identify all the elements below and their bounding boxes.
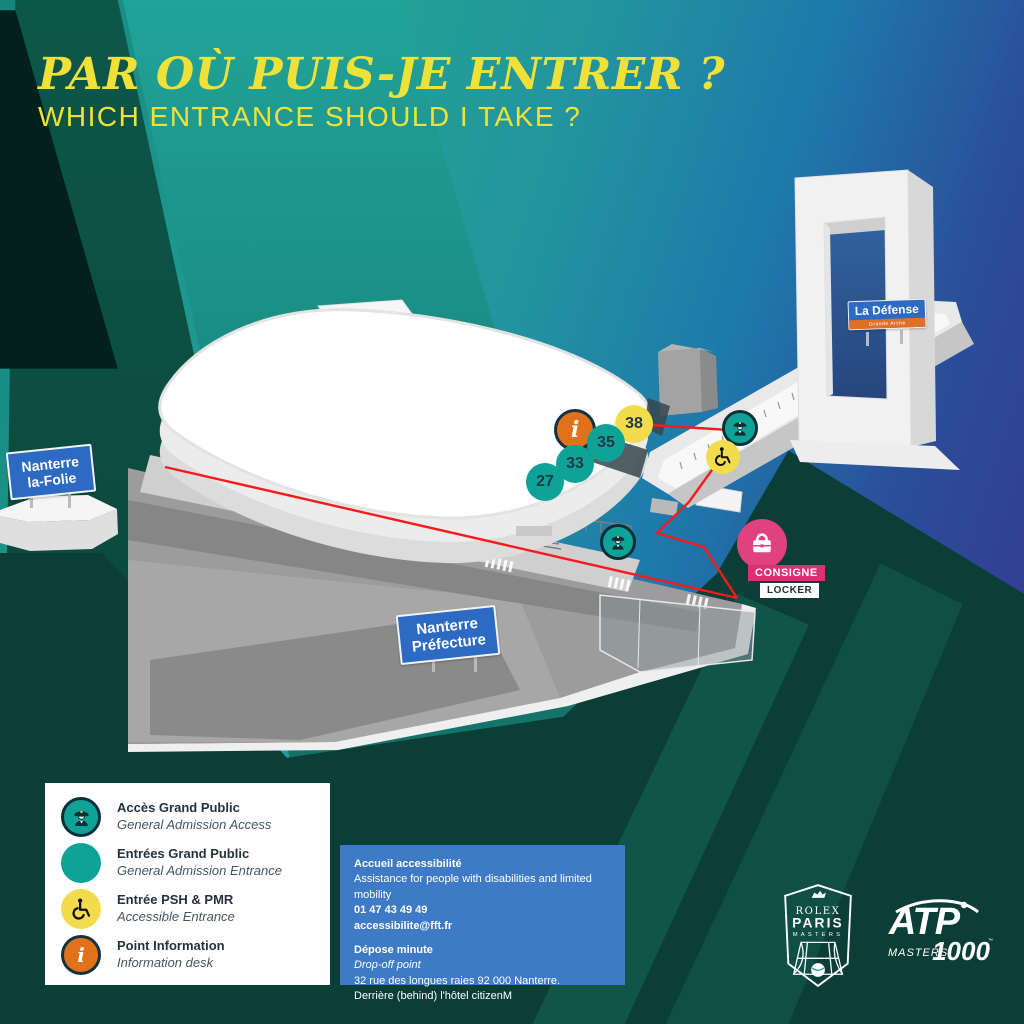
entrance-27-marker: 27 [526, 463, 564, 501]
legend-label-fr: Entrée PSH & PMR [117, 892, 235, 909]
locker-bag-icon [747, 529, 777, 559]
guard-icon [606, 530, 630, 554]
legend-label-en: Accessible Entrance [117, 909, 235, 926]
wheelchair-icon [711, 445, 735, 469]
phone-number: 01 47 43 49 49 [354, 903, 611, 918]
sign-subtitle: Grande Arche [849, 318, 925, 330]
atp-masters-1000-logo: ATP MASTERS 1000 ™ [866, 898, 994, 970]
email-address: accessibilite@fft.fr [354, 919, 611, 934]
dropoff-note: Derrière (behind) l'hôtel citizenM [354, 989, 611, 1004]
rolex-paris-masters-logo: ROLEX PARIS MASTERS [780, 882, 856, 988]
legend-item-access: Accès Grand Public General Admission Acc… [61, 797, 330, 837]
poster: Nanterre la-Folie Nanterre Préfecture La… [0, 0, 1024, 1024]
entrance-number: 38 [625, 415, 643, 433]
entrance-number: 33 [566, 455, 584, 473]
locker-label: LOCKER [760, 583, 819, 598]
guard-icon [728, 416, 752, 440]
page-title: PAR OÙ PUIS-JE ENTRER ? WHICH ENTRANCE S… [38, 52, 725, 133]
legend-item-information: i Point Information Information desk [61, 935, 330, 975]
accessibility-desc: Assistance for people with disabilities … [354, 872, 611, 903]
entrance-number: 27 [536, 473, 554, 491]
legend-label-fr: Point Information [117, 938, 225, 955]
svg-text:MASTERS: MASTERS [793, 932, 843, 938]
info-icon: i [571, 417, 579, 443]
sign-post [866, 332, 869, 346]
dropoff-subtitle: Drop-off point [354, 958, 611, 973]
sign-nanterre-prefecture: Nanterre Préfecture [396, 605, 501, 665]
locker-marker [737, 519, 787, 569]
crown-icon [812, 891, 826, 898]
dropoff-address: 32 rue des longues raies 92 000 Nanterre… [354, 974, 611, 989]
entrance-number: 35 [597, 434, 615, 452]
legend-item-entrance: Entrées Grand Public General Admission E… [61, 843, 330, 883]
sign-post [900, 330, 903, 344]
sign-la-defense: La Défense Grande Arche [848, 299, 927, 331]
wheelchair-icon [61, 889, 101, 929]
admission-access-marker [600, 524, 636, 560]
la-folie-platform [0, 495, 118, 551]
dropoff-title: Dépose minute [354, 943, 611, 958]
title-english: WHICH ENTRANCE SHOULD I TAKE ? [38, 101, 725, 133]
info-icon: i [61, 935, 101, 975]
legend-label-fr: Entrées Grand Public [117, 846, 282, 863]
accessibility-info-panel: Accueil accessibilité Assistance for peo… [340, 845, 625, 985]
sign-nanterre-la-folie: Nanterre la-Folie [6, 444, 97, 501]
legend-label-en: Information desk [117, 955, 225, 972]
consigne-label: CONSIGNE [748, 565, 825, 581]
legend-item-accessible: Entrée PSH & PMR Accessible Entrance [61, 889, 330, 929]
legend-label-en: General Admission Access [117, 817, 271, 834]
guard-icon [61, 797, 101, 837]
svg-text:1000: 1000 [932, 936, 990, 966]
title-french: PAR OÙ PUIS-JE ENTRER ? [38, 52, 725, 98]
svg-text:PARIS: PARIS [792, 916, 844, 931]
accessibility-title: Accueil accessibilité [354, 857, 611, 872]
legend-panel: Accès Grand Public General Admission Acc… [45, 783, 330, 985]
entrance-dot-icon [61, 843, 101, 883]
accessible-entrance-marker [706, 440, 740, 474]
svg-text:™: ™ [988, 938, 993, 944]
legend-label-fr: Accès Grand Public [117, 800, 271, 817]
legend-label-en: General Admission Entrance [117, 863, 282, 880]
